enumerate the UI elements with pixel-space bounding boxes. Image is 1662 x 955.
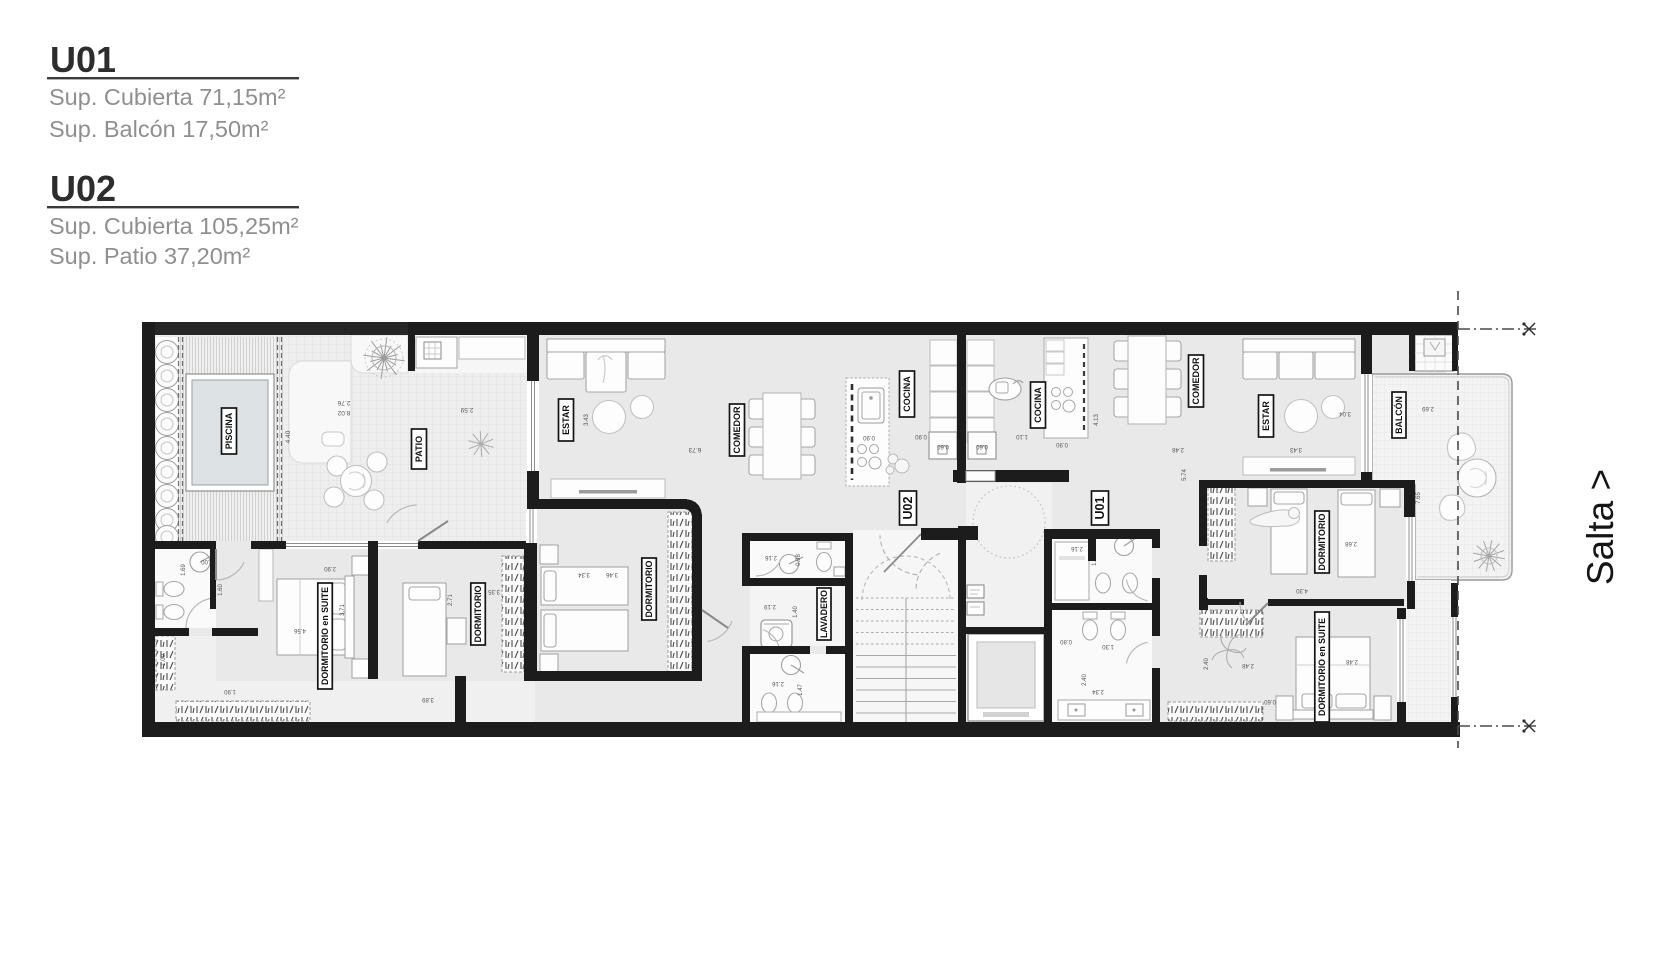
svg-text:PATIO: PATIO bbox=[414, 436, 424, 462]
svg-text:Sup. Cubierta 105,25m²: Sup. Cubierta 105,25m² bbox=[49, 213, 299, 239]
svg-text:4.13: 4.13 bbox=[1094, 414, 1100, 426]
svg-text:2.48: 2.48 bbox=[1346, 658, 1358, 664]
svg-text:Sup. Balcón 17,50m²: Sup. Balcón 17,50m² bbox=[49, 116, 269, 142]
svg-text:DORMITORIO: DORMITORIO bbox=[1317, 513, 1327, 570]
svg-text:U02: U02 bbox=[50, 168, 116, 209]
svg-text:3.35: 3.35 bbox=[488, 588, 500, 594]
svg-text:3.43: 3.43 bbox=[1290, 446, 1302, 452]
svg-text:U01: U01 bbox=[50, 39, 116, 80]
svg-text:Sup. Patio 37,20m²: Sup. Patio 37,20m² bbox=[49, 243, 250, 269]
svg-text:2.71: 2.71 bbox=[448, 594, 454, 606]
svg-text:COCINA: COCINA bbox=[902, 376, 912, 412]
svg-text:2.76: 2.76 bbox=[337, 399, 350, 406]
svg-text:Salta >: Salta > bbox=[1580, 469, 1621, 585]
svg-text:ESTAR: ESTAR bbox=[1261, 401, 1271, 431]
svg-text:COMEDOR: COMEDOR bbox=[1191, 357, 1201, 405]
svg-text:2.48: 2.48 bbox=[1242, 662, 1254, 668]
svg-text:2.69: 2.69 bbox=[1422, 405, 1434, 411]
svg-text:4.56: 4.56 bbox=[294, 627, 306, 633]
svg-text:1.30: 1.30 bbox=[1102, 643, 1114, 649]
svg-text:2.90: 2.90 bbox=[324, 565, 336, 571]
svg-text:4.30: 4.30 bbox=[1296, 587, 1308, 593]
svg-text:1.90: 1.90 bbox=[224, 688, 236, 694]
svg-text:5.74: 5.74 bbox=[1182, 469, 1188, 481]
svg-text:1.47: 1.47 bbox=[798, 684, 804, 696]
svg-text:2.59: 2.59 bbox=[460, 406, 473, 413]
svg-text:1.00: 1.00 bbox=[161, 654, 167, 666]
svg-text:3.46: 3.46 bbox=[606, 571, 618, 577]
svg-text:2.68: 2.68 bbox=[1345, 540, 1357, 546]
svg-text:3.43: 3.43 bbox=[584, 414, 590, 426]
svg-text:0.60: 0.60 bbox=[976, 443, 988, 449]
svg-text:0.80: 0.80 bbox=[1060, 638, 1072, 644]
svg-text:0.60: 0.60 bbox=[937, 443, 949, 449]
svg-text:1.40: 1.40 bbox=[793, 606, 799, 618]
svg-text:2.40: 2.40 bbox=[1082, 674, 1088, 686]
svg-text:2.19: 2.19 bbox=[764, 603, 776, 609]
svg-text:2.40: 2.40 bbox=[1204, 658, 1210, 670]
svg-text:COMEDOR: COMEDOR bbox=[732, 406, 742, 454]
svg-text:2.16: 2.16 bbox=[772, 680, 784, 686]
svg-text:Sup. Cubierta 71,15m²: Sup. Cubierta 71,15m² bbox=[49, 84, 286, 110]
svg-text:DORMITORIO en SUITE: DORMITORIO en SUITE bbox=[1317, 618, 1327, 716]
svg-text:3.89: 3.89 bbox=[422, 696, 434, 702]
svg-text:2.16: 2.16 bbox=[765, 554, 777, 560]
svg-text:DORMITORIO: DORMITORIO bbox=[473, 585, 483, 642]
svg-text:3.04: 3.04 bbox=[1339, 410, 1351, 416]
svg-text:2.48: 2.48 bbox=[1172, 446, 1184, 452]
svg-text:1.69: 1.69 bbox=[181, 564, 187, 576]
svg-text:COCINA: COCINA bbox=[1033, 387, 1043, 423]
svg-text:0.90: 0.90 bbox=[915, 433, 927, 439]
svg-text:3.71: 3.71 bbox=[340, 604, 346, 616]
svg-text:8.02: 8.02 bbox=[337, 409, 350, 416]
svg-text:0.90: 0.90 bbox=[1056, 441, 1068, 447]
svg-text:1.60: 1.60 bbox=[218, 584, 224, 596]
svg-text:1.10: 1.10 bbox=[1016, 433, 1028, 439]
svg-text:PISCINA: PISCINA bbox=[224, 412, 234, 449]
svg-text:0.98: 0.98 bbox=[796, 554, 802, 566]
svg-text:DORMITORIO en SUITE: DORMITORIO en SUITE bbox=[320, 587, 330, 685]
svg-text:LAVADERO: LAVADERO bbox=[819, 590, 829, 638]
svg-text:7.65: 7.65 bbox=[1416, 492, 1422, 504]
svg-text:0.90: 0.90 bbox=[863, 434, 875, 440]
svg-text:2.16: 2.16 bbox=[1071, 545, 1083, 551]
svg-text:U01: U01 bbox=[1093, 496, 1107, 519]
svg-text:U02: U02 bbox=[901, 496, 915, 519]
svg-text:3.34: 3.34 bbox=[578, 571, 590, 577]
svg-text:ESTAR: ESTAR bbox=[561, 405, 571, 435]
svg-text:0.60: 0.60 bbox=[1264, 698, 1276, 704]
svg-text:BALCÓN: BALCÓN bbox=[1393, 396, 1404, 434]
svg-text:6.73: 6.73 bbox=[688, 446, 701, 453]
svg-text:2.34: 2.34 bbox=[1092, 688, 1104, 694]
svg-text:4.40: 4.40 bbox=[285, 430, 292, 443]
svg-text:DORMITORIO: DORMITORIO bbox=[644, 560, 654, 617]
